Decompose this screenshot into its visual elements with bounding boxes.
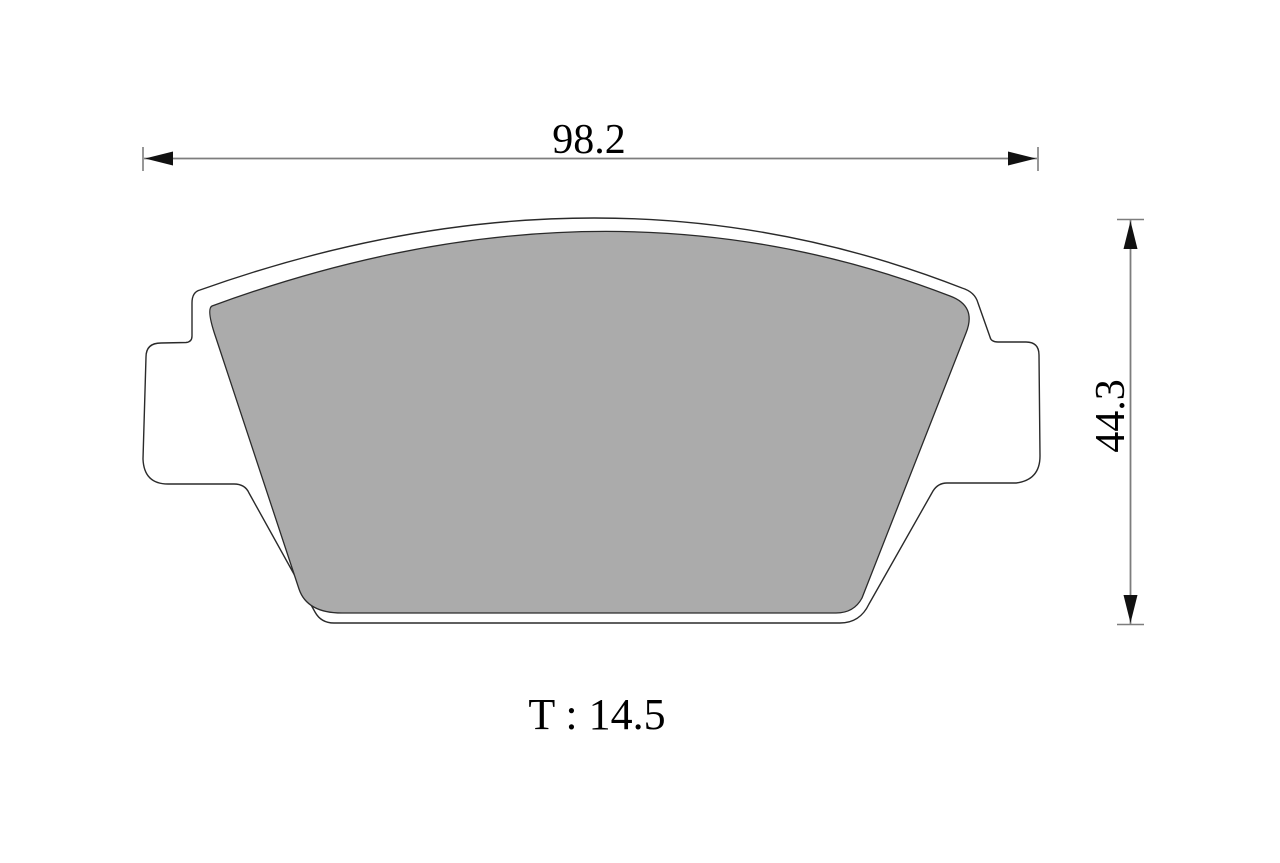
width-dim-label: 98.2 [552,117,626,163]
height-dim-arrow-up [1124,221,1138,249]
width-dimension: 98.2 [143,117,1038,171]
height-dim-arrow-down [1124,595,1138,623]
width-dim-arrow-right [1008,152,1036,166]
friction-material-shape [210,231,969,613]
height-dimension: 44.3 [1088,220,1144,625]
brake-pad-technical-drawing: 98.2 44.3 T : 14.5 [0,0,1280,863]
width-dim-arrow-left [145,152,173,166]
height-dim-label: 44.3 [1088,379,1134,453]
thickness-label: T : 14.5 [528,690,665,739]
